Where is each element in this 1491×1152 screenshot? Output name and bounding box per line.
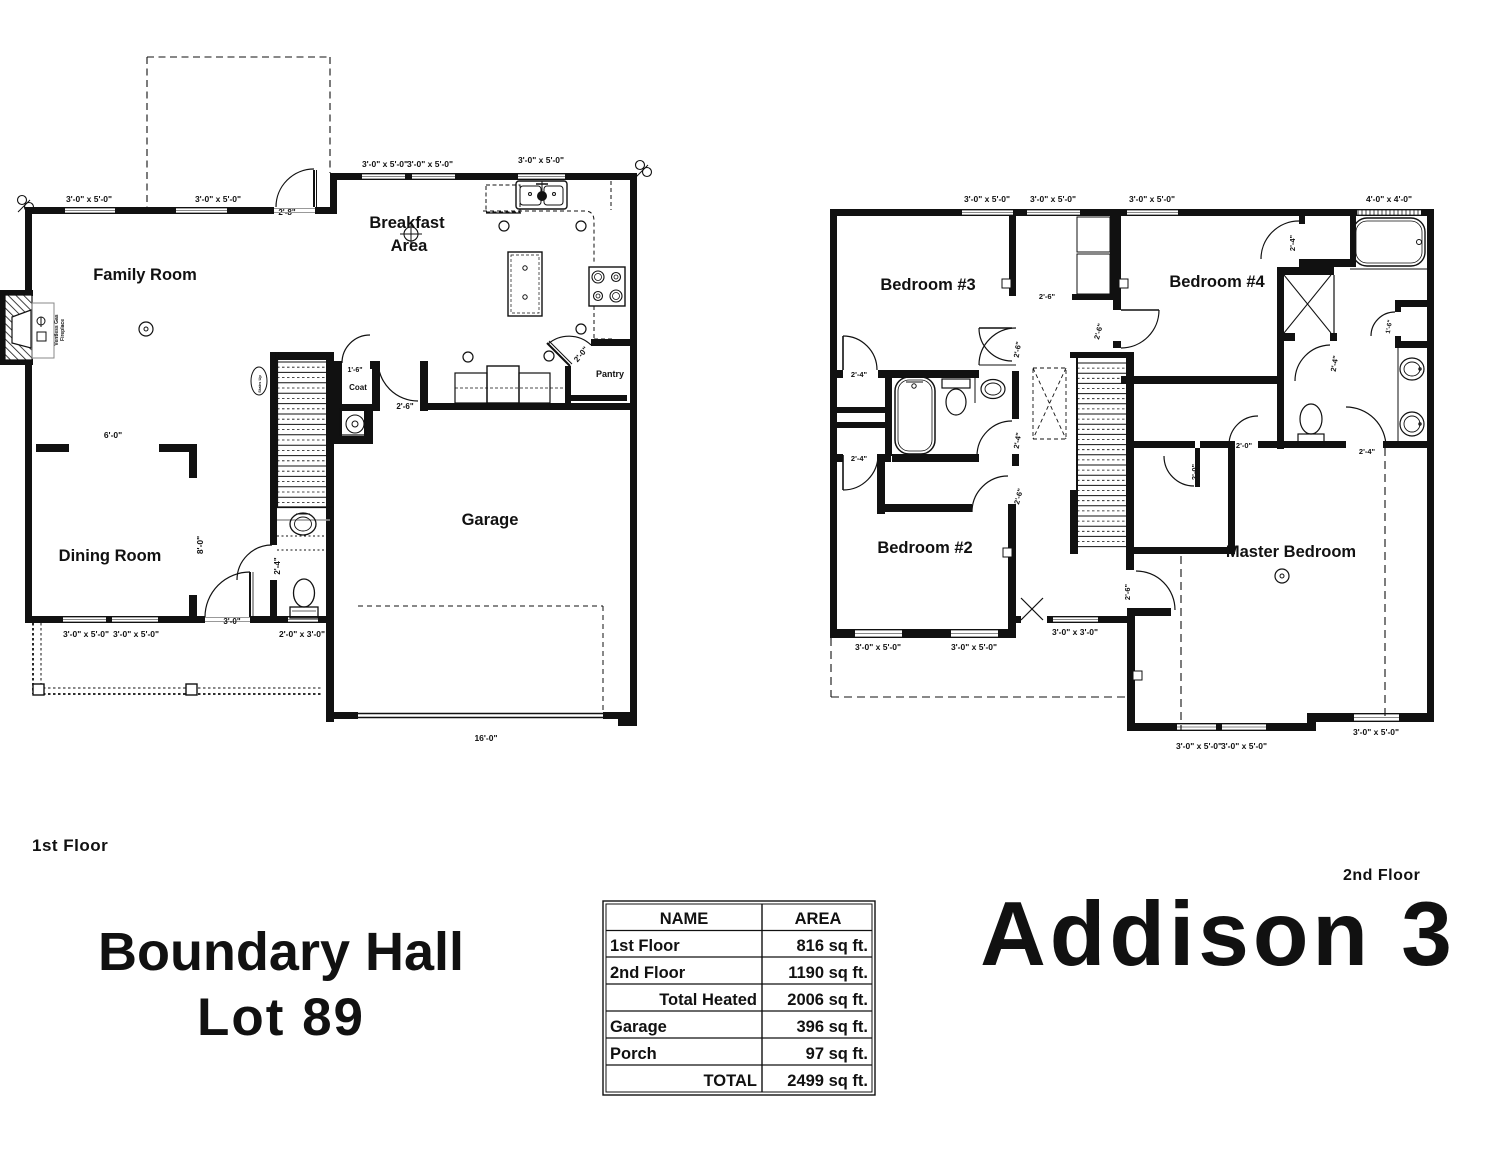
svg-text:2'-4": 2'-4" [851, 370, 868, 379]
svg-text:2'-6": 2'-6" [1123, 583, 1132, 600]
svg-text:3'-0" x 5'-0": 3'-0" x 5'-0" [855, 642, 901, 652]
svg-text:3'-0" x 5'-0": 3'-0" x 5'-0" [362, 159, 408, 169]
svg-text:2006 sq ft.: 2006 sq ft. [787, 991, 868, 1009]
svg-text:396 sq ft.: 396 sq ft. [796, 1018, 868, 1036]
svg-text:2'-0" x 3'-0": 2'-0" x 3'-0" [279, 629, 325, 639]
svg-text:3'-0" x 5'-0": 3'-0" x 5'-0" [518, 155, 564, 165]
svg-text:Bedroom #4: Bedroom #4 [1169, 273, 1265, 291]
svg-text:2'-0": 2'-0" [1190, 463, 1199, 480]
svg-text:Fireplace: Fireplace [60, 319, 66, 341]
svg-text:97 sq ft.: 97 sq ft. [806, 1045, 868, 1063]
svg-text:Coat: Coat [349, 383, 367, 392]
svg-text:Stairs Up: Stairs Up [257, 375, 262, 393]
svg-text:2'-4": 2'-4" [1288, 234, 1297, 251]
svg-text:2'-4": 2'-4" [851, 454, 868, 463]
svg-text:3'-0" x 3'-0": 3'-0" x 3'-0" [1052, 627, 1098, 637]
svg-text:Pantry: Pantry [596, 369, 624, 379]
svg-text:1'-6": 1'-6" [347, 367, 362, 374]
svg-text:3'-0" x 5'-0": 3'-0" x 5'-0" [1129, 194, 1175, 204]
svg-text:Lot 89: Lot 89 [197, 988, 365, 1047]
svg-text:6'-0": 6'-0" [104, 430, 122, 440]
svg-text:3'-0" x 5'-0": 3'-0" x 5'-0" [1353, 727, 1399, 737]
svg-text:Addison 3: Addison 3 [980, 884, 1456, 985]
svg-text:3'-0" x 5'-0": 3'-0" x 5'-0" [951, 642, 997, 652]
svg-text:3'-0": 3'-0" [223, 617, 240, 626]
svg-text:2nd Floor: 2nd Floor [610, 964, 686, 982]
svg-text:Dining Room: Dining Room [59, 547, 162, 565]
svg-text:816 sq ft.: 816 sq ft. [796, 937, 868, 955]
svg-text:Boundary Hall: Boundary Hall [98, 922, 464, 982]
svg-text:Garage: Garage [610, 1018, 667, 1036]
svg-text:Porch: Porch [610, 1045, 657, 1063]
svg-text:AREA: AREA [795, 910, 842, 928]
svg-text:3'-0" x 5'-0": 3'-0" x 5'-0" [407, 159, 453, 169]
svg-text:4'-0" x 4'-0": 4'-0" x 4'-0" [1366, 194, 1412, 204]
svg-text:3'-0" x 5'-0": 3'-0" x 5'-0" [1221, 741, 1267, 751]
svg-text:NAME: NAME [660, 910, 709, 928]
svg-text:2'-4": 2'-4" [273, 557, 282, 574]
svg-text:2'-4": 2'-4" [1359, 447, 1376, 456]
svg-text:2'-6": 2'-6" [396, 402, 413, 411]
svg-text:2nd Floor: 2nd Floor [1343, 867, 1420, 884]
svg-text:3'-0" x 5'-0": 3'-0" x 5'-0" [63, 629, 109, 639]
svg-text:TOTAL: TOTAL [704, 1072, 757, 1090]
svg-text:Garage: Garage [462, 511, 519, 529]
svg-text:Total Heated: Total Heated [659, 991, 757, 1009]
svg-text:2'-0": 2'-0" [1236, 441, 1253, 450]
svg-text:3'-0" x 5'-0": 3'-0" x 5'-0" [1176, 741, 1222, 751]
svg-text:2'-6": 2'-6" [1039, 292, 1056, 301]
svg-text:Family Room: Family Room [93, 266, 197, 284]
svg-text:1190 sq ft.: 1190 sq ft. [788, 964, 868, 982]
svg-text:Bedroom #2: Bedroom #2 [877, 539, 972, 557]
svg-text:3'-0" x 5'-0": 3'-0" x 5'-0" [195, 194, 241, 204]
svg-text:1st Floor: 1st Floor [610, 937, 680, 955]
svg-text:1st Floor: 1st Floor [32, 836, 108, 855]
svg-text:3'-0" x 5'-0": 3'-0" x 5'-0" [1030, 194, 1076, 204]
svg-text:8'-0": 8'-0" [195, 536, 205, 554]
svg-text:Bedroom #3: Bedroom #3 [880, 276, 975, 294]
svg-text:Breakfast: Breakfast [369, 214, 445, 232]
svg-text:Master Bedroom: Master Bedroom [1226, 543, 1356, 561]
svg-text:Area: Area [391, 237, 429, 255]
svg-text:3'-0" x 5'-0": 3'-0" x 5'-0" [66, 194, 112, 204]
svg-text:2499 sq ft.: 2499 sq ft. [787, 1072, 868, 1090]
svg-text:3'-0" x 5'-0": 3'-0" x 5'-0" [964, 194, 1010, 204]
svg-text:16'-0": 16'-0" [474, 733, 497, 743]
svg-text:3'-0" x 5'-0": 3'-0" x 5'-0" [113, 629, 159, 639]
